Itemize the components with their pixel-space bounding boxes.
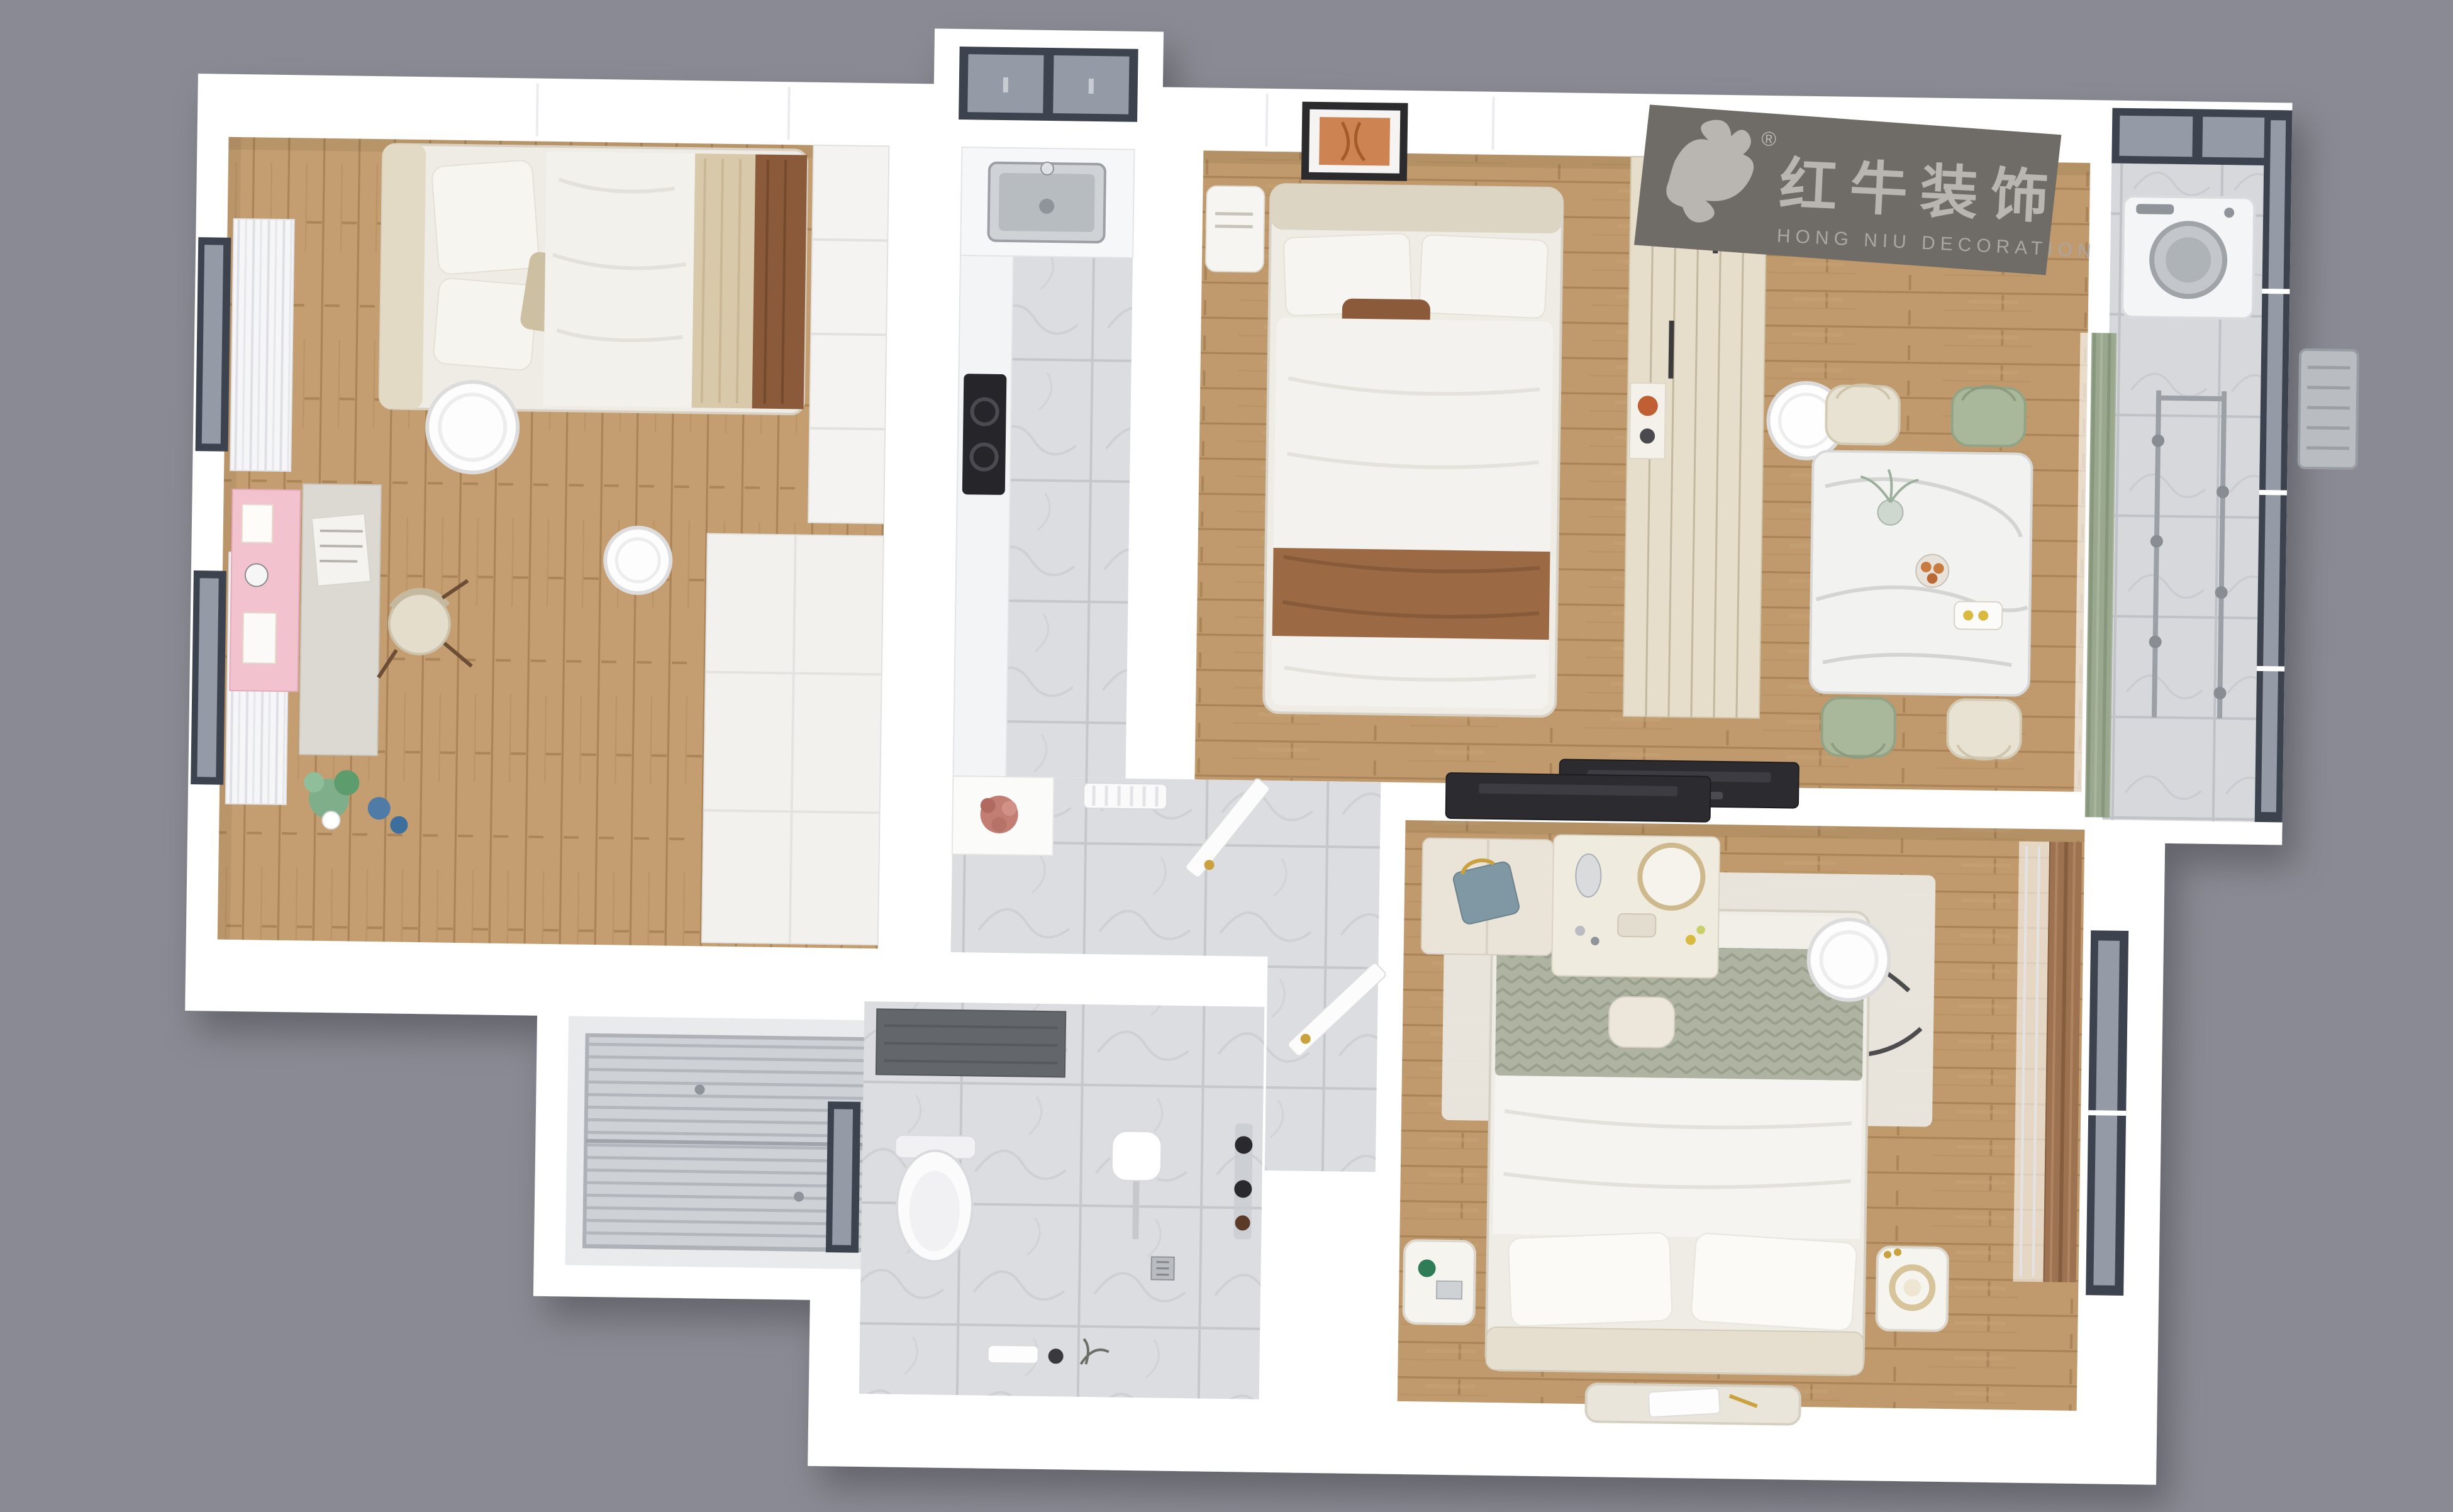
shower-head (1111, 1131, 1162, 1182)
master-pendant-lamp (1808, 919, 1890, 1001)
dining-chair-green-2 (1822, 698, 1895, 757)
window-handle (1003, 77, 1008, 92)
kids-bedroom (189, 136, 889, 948)
ac-outdoor-unit (2299, 350, 2359, 469)
kitchen (949, 47, 1138, 779)
floorplan-render: ® 红牛装饰 HONG NIU DECORATION (0, 0, 2453, 1512)
kids-bed (380, 144, 808, 414)
kids-pendant-lamp (426, 381, 518, 473)
kids-curtain-pleated (230, 219, 294, 471)
toilet (894, 1135, 976, 1262)
wall-art-frame (1301, 102, 1408, 181)
washing-machine (2122, 196, 2255, 319)
master-tv (1446, 773, 1711, 822)
dining-chair-cream-2 (1947, 699, 2021, 759)
master-headboard (1486, 1327, 1864, 1375)
bathroom (824, 1001, 1265, 1399)
kids-desk-books (312, 514, 370, 586)
brand-name-cn: 红牛装饰 (1777, 153, 2062, 231)
vanity-hand-mirror (1576, 854, 1601, 898)
wardrobe-niche (1630, 383, 1666, 459)
registered-mark: ® (1761, 127, 1777, 150)
gas-cooktop (962, 374, 1007, 495)
wardrobe-handle (1668, 321, 1674, 379)
radiator (1084, 783, 1167, 809)
master-duvet (1493, 1076, 1862, 1239)
bed-duvet (1271, 318, 1554, 709)
bedroom-nightstand (1206, 186, 1265, 272)
kids-pillow (431, 160, 540, 275)
dining-chair-green (1952, 387, 2025, 447)
master-nightstand-right (1876, 1247, 1948, 1331)
washer-controls (2136, 204, 2174, 214)
bathroom-window-glass (832, 1109, 853, 1245)
master-pillow-2 (1691, 1233, 1857, 1331)
kitchen-faucet (1041, 162, 1054, 175)
cosmetics-box (1618, 914, 1655, 937)
kids-window-glass-2 (197, 578, 218, 777)
shower-stand (1135, 1181, 1136, 1239)
kids-window-glass (202, 245, 223, 443)
kitchen-sink (988, 162, 1105, 243)
master-nightstand-left (1403, 1240, 1475, 1325)
master-bedroom (1397, 772, 2130, 1429)
master-brown-curtain (2043, 842, 2082, 1282)
kids-blanket-brown (752, 154, 808, 409)
vanity-round-mirror (1640, 845, 1703, 908)
bed-end-bench (1586, 1384, 1800, 1425)
table-vase (1877, 499, 1903, 525)
window-handle-2 (1089, 79, 1094, 94)
kitchen-counter-left (953, 255, 1013, 777)
bed-headboard (1271, 184, 1563, 233)
middle-bedroom-bed (1264, 184, 1563, 716)
kids-pendant-lamp-2 (605, 527, 671, 593)
bench-magazine (1649, 1388, 1720, 1417)
kids-shelf-card (242, 504, 273, 543)
bed-pillow-2 (1419, 235, 1549, 319)
bath-tray (987, 1345, 1038, 1364)
master-sheer-curtain (2013, 842, 2049, 1282)
kids-alarm-clock (245, 564, 268, 586)
vanity-stool (1609, 997, 1675, 1048)
kids-shelf-book (243, 613, 276, 664)
dining-table (1810, 451, 2032, 696)
dining-chair-cream (1826, 386, 1900, 445)
kids-bed-headboard (380, 144, 426, 409)
master-pillow (1508, 1232, 1672, 1326)
nightstand-photo-frame (1437, 1281, 1462, 1299)
